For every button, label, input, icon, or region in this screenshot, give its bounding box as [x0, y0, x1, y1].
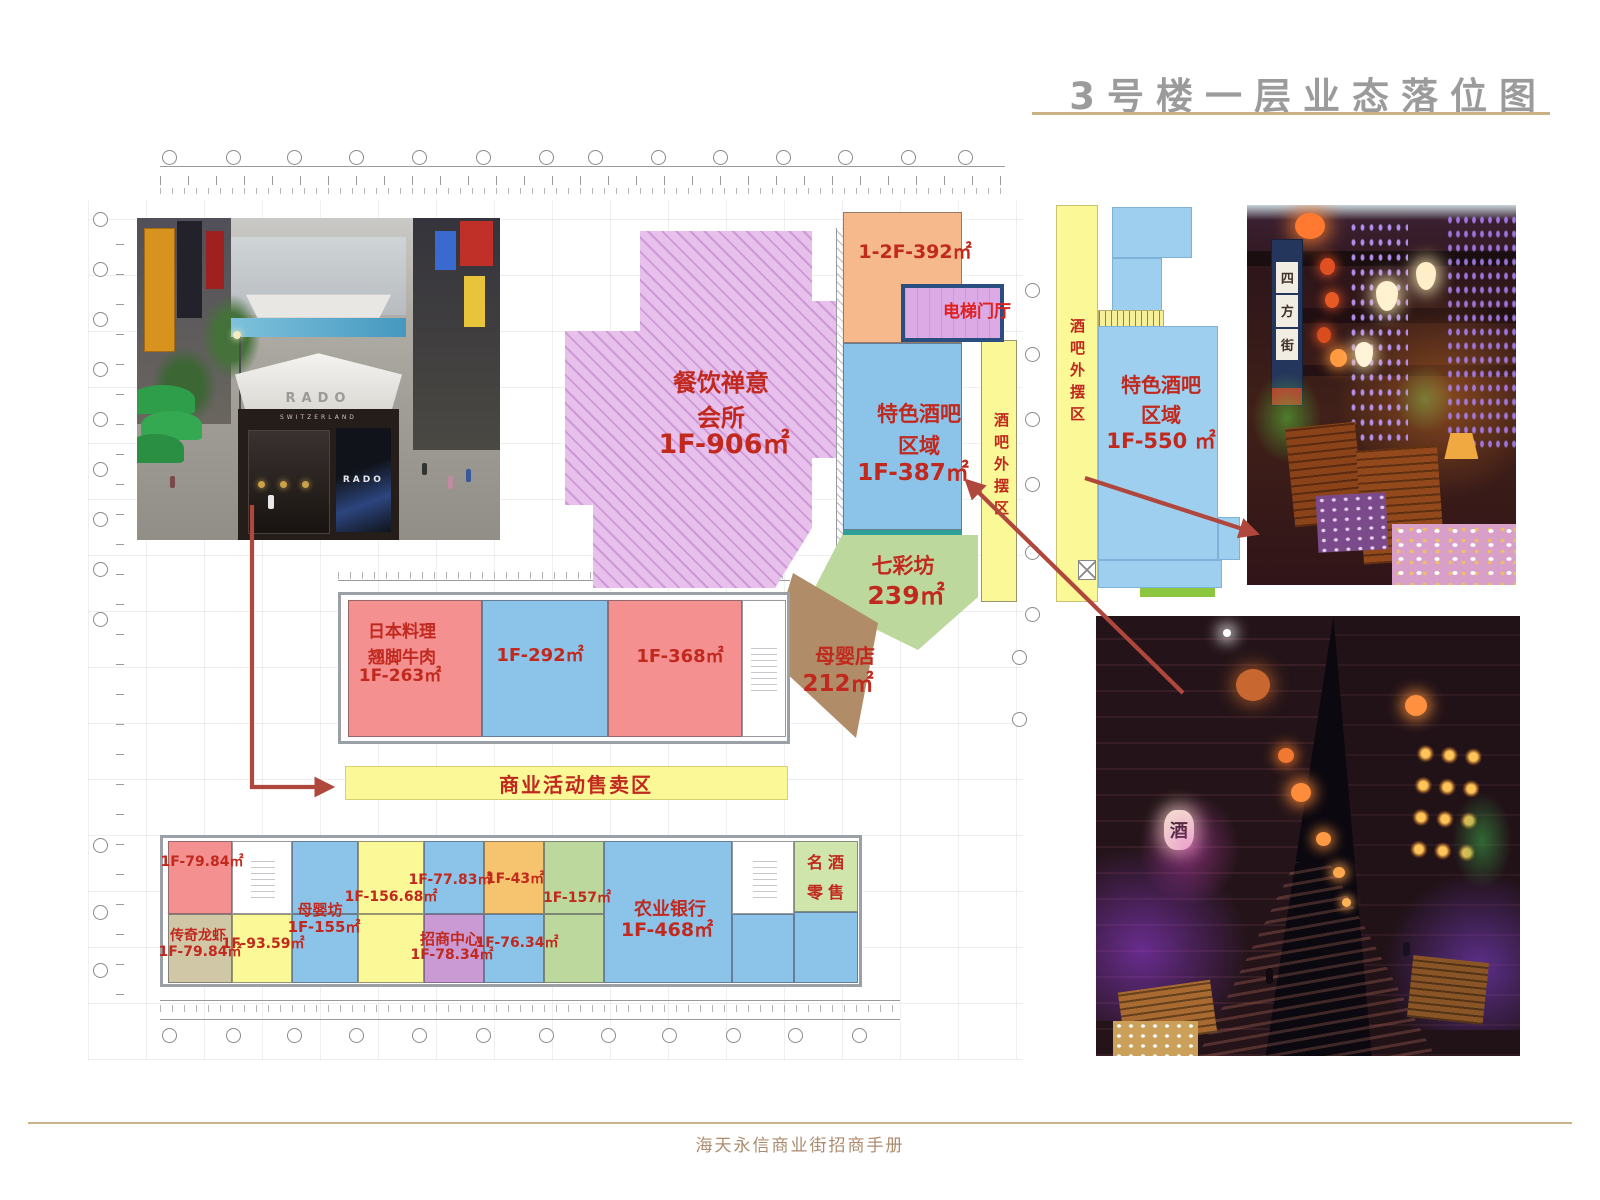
plan2-bar-block-4 [1218, 517, 1240, 560]
alley-bench-right [1407, 955, 1489, 1024]
grid-bubble [162, 1028, 177, 1043]
banner-char-3: 街 [1281, 335, 1294, 354]
grid-bubble [476, 1028, 491, 1043]
label-liquor-retail: 名酒 零售 [807, 848, 849, 909]
zone-7984-top [168, 841, 232, 914]
grid-bubble [93, 212, 108, 227]
grid-bubble [1025, 283, 1040, 298]
label-agricultural-bank-area: 1F-468㎡ [621, 919, 713, 943]
label-japanese-restaurant: 日本料理 翘脚牛肉 [368, 620, 436, 671]
grid-bubble [776, 150, 791, 165]
grid-bubble [287, 150, 302, 165]
brochure-page: 3号楼一层业态落位图 [0, 0, 1600, 1200]
alley-lantern-6 [1405, 695, 1427, 716]
grid-bubble [476, 150, 491, 165]
courtyard-table-2 [1392, 524, 1516, 585]
street-umbrella-1 [137, 385, 195, 414]
grid-bubble [539, 150, 554, 165]
dimension-ticks-top [160, 176, 1005, 185]
grid-bubble [662, 1028, 677, 1043]
zone-292 [482, 600, 608, 737]
grid-bubble [1025, 607, 1040, 622]
street-sign-yellow [464, 276, 486, 328]
zone-bottom-blue-3 [794, 912, 858, 983]
bottom-stair-room-b [732, 841, 794, 914]
rado-awning-text: RADO [286, 391, 352, 409]
label-392: 1-2F-392㎡ [858, 241, 971, 265]
footer-line [28, 1122, 1572, 1124]
plan2-bar-block-2 [1112, 258, 1162, 312]
bottom-stair-room-a [232, 841, 292, 914]
zone-368 [608, 600, 742, 737]
photo-pedestrian-street: RADO SWITZERLAND RADO [137, 218, 500, 540]
alley-lantern-big [1236, 669, 1270, 701]
alley-person-2 [1403, 942, 1410, 956]
label-7634: 1F-76.34㎡ [476, 935, 559, 953]
label-activity-strip: 商业活动售卖区 [499, 773, 653, 798]
label-muyingfang-area: 1F-155㎡ [288, 918, 361, 937]
label-bar-387-area: 1F-387㎡ [857, 459, 969, 488]
grid-bubble [788, 1028, 803, 1043]
grid-bubble [93, 512, 108, 527]
street-sign-red2 [460, 221, 493, 266]
grid-bubble [539, 1028, 554, 1043]
grid-bubble [93, 562, 108, 577]
dimension-line-top [160, 166, 1005, 167]
grid-bubble [412, 150, 427, 165]
photo-bar-courtyard: 四 方 街 [1247, 205, 1516, 585]
street-person-2 [448, 476, 453, 489]
rado-kiosk: RADO SWITZERLAND RADO [235, 353, 402, 540]
street-person-1 [466, 469, 471, 482]
label-43: 1F-43㎡ [486, 871, 544, 889]
label-leasing-center: 招商中心 [420, 930, 480, 949]
dimension-line-bottom [160, 1000, 900, 1001]
grid-bubble [93, 462, 108, 477]
plan2-bar-block-1 [1112, 207, 1192, 258]
label-plan2-terrace: 酒吧外摆区 [1067, 318, 1088, 428]
banner-char-1: 四 [1281, 268, 1294, 287]
grid-bubble [651, 150, 666, 165]
street-lamp-glow-1 [233, 331, 241, 339]
street-person-5 [268, 495, 274, 509]
grid-bubble [958, 150, 973, 165]
grid-bubble [726, 1028, 741, 1043]
alley-lantern-1 [1291, 783, 1311, 802]
grid-bubble [93, 612, 108, 627]
grid-bubble [901, 150, 916, 165]
grid-bubble [1025, 347, 1040, 362]
grid-bubble [852, 1028, 867, 1043]
grid-bubble [838, 150, 853, 165]
grid-bubble [1025, 412, 1040, 427]
label-7783: 1F-77.83㎡ [409, 872, 492, 890]
dimension-ticks-bottom [160, 1005, 900, 1012]
alley-lantern-2 [1316, 832, 1331, 846]
label-plan2-bar: 特色酒吧 区域 [1121, 370, 1201, 430]
label-mother-baby-store: 母婴店 [815, 644, 875, 669]
lantern-big-orange [1295, 213, 1325, 239]
label-japanese-restaurant-area: 1F-263㎡ [359, 666, 441, 687]
grid-bubble [93, 963, 108, 978]
label-plan2-bar-area: 1F-550 ㎡ [1106, 428, 1215, 454]
rado-ad-text: RADO [343, 475, 384, 485]
label-qicaifang: 七彩坊 [872, 553, 935, 579]
rado-switzerland-text: SWITZERLAND [238, 414, 398, 421]
grid-bubble [226, 150, 241, 165]
lantern-red-3 [1317, 327, 1331, 343]
grid-bubble [93, 362, 108, 377]
street-sign-red [206, 231, 224, 289]
grid-bubble [1012, 712, 1027, 727]
label-7984-top: 1F-79.84㎡ [161, 854, 244, 872]
banner-panel-2: 方 [1276, 295, 1298, 327]
grid-bubble [287, 1028, 302, 1043]
label-elevator-lobby: 电梯门厅 [943, 302, 1011, 323]
label-bar-387: 特色酒吧 区域 [877, 399, 961, 462]
grid-bubble [412, 1028, 427, 1043]
lantern-teardrop-3 [1355, 342, 1373, 367]
zone-bottom-blue-2 [732, 914, 794, 983]
dimension-line-bottom2 [160, 1019, 900, 1020]
dimension-ticks-left [116, 215, 124, 995]
dimension-ticks-top-fine [160, 188, 1005, 194]
grid-bubble [713, 150, 728, 165]
grid-bubble [1025, 545, 1040, 560]
rado-awning: RADO [235, 353, 402, 409]
courtyard-plant-glow-2 [1395, 365, 1454, 433]
street-sign-blue [435, 231, 457, 270]
street-sign-orange [144, 228, 175, 352]
label-9359: 1F-93.59㎡ [222, 936, 305, 954]
rado-ad-panel: RADO [336, 428, 390, 533]
courtyard-purple-lights-2 [1446, 213, 1516, 449]
grid-bubble [588, 150, 603, 165]
banner-char-2: 方 [1281, 301, 1294, 320]
grid-bubble [226, 1028, 241, 1043]
label-mother-baby-store-area: 212㎡ [802, 670, 873, 699]
plan2-bar-block-5 [1098, 560, 1222, 588]
street-banner-blue [231, 318, 405, 337]
plan2-stair-box [1078, 560, 1096, 580]
grid-bubble [601, 1028, 616, 1043]
courtyard-table-1 [1315, 492, 1388, 553]
label-dining-club-area: 1F-906㎡ [659, 428, 790, 462]
alley-table-left [1113, 1021, 1198, 1056]
label-muyingfang: 母婴坊 [297, 901, 342, 920]
grid-bubble [162, 150, 177, 165]
grid-bubble [93, 312, 108, 327]
middle-stair-room [742, 600, 786, 737]
grid-bubble [93, 838, 108, 853]
label-dining-club: 餐饮禅意 会所 [673, 366, 769, 436]
lantern-red-1 [1320, 258, 1335, 275]
label-15668: 1F-156.68㎡ [345, 889, 438, 907]
label-157: 1F-157㎡ [543, 890, 611, 908]
footer-text: 海天永信商业街招商手册 [0, 1131, 1600, 1156]
street-sign-dark [177, 221, 202, 318]
alley-plant-right [1452, 792, 1511, 889]
grid-bubble [93, 905, 108, 920]
grid-bubble [93, 262, 108, 277]
photo-bar-alley: 酒 [1096, 616, 1520, 1056]
label-terrace-strip: 酒吧外摆区 [991, 412, 1012, 522]
grid-bubble [93, 412, 108, 427]
rado-showcase-light-1 [258, 481, 265, 488]
title-underline [1032, 112, 1550, 115]
grid-bubble [1025, 477, 1040, 492]
rado-body: SWITZERLAND RADO [238, 409, 398, 540]
grid-bubble [1012, 650, 1027, 665]
grid-bubble [349, 150, 364, 165]
street-person-3 [422, 463, 427, 475]
teal-edge [843, 530, 962, 535]
label-368: 1F-368㎡ [636, 646, 723, 669]
alley-neon-left2 [1138, 792, 1240, 906]
label-292: 1F-292㎡ [496, 645, 583, 668]
banner-panel-3: 街 [1276, 329, 1298, 361]
banner-panel-1: 四 [1276, 262, 1298, 294]
plan2-green-strip [1140, 588, 1215, 597]
street-person-4 [170, 476, 175, 488]
label-legend-crayfish: 传奇龙虾 [170, 928, 226, 946]
grid-bubble [349, 1028, 364, 1043]
label-qicaifang-area: 239㎡ [867, 580, 944, 611]
alley-person-1 [1266, 968, 1273, 984]
